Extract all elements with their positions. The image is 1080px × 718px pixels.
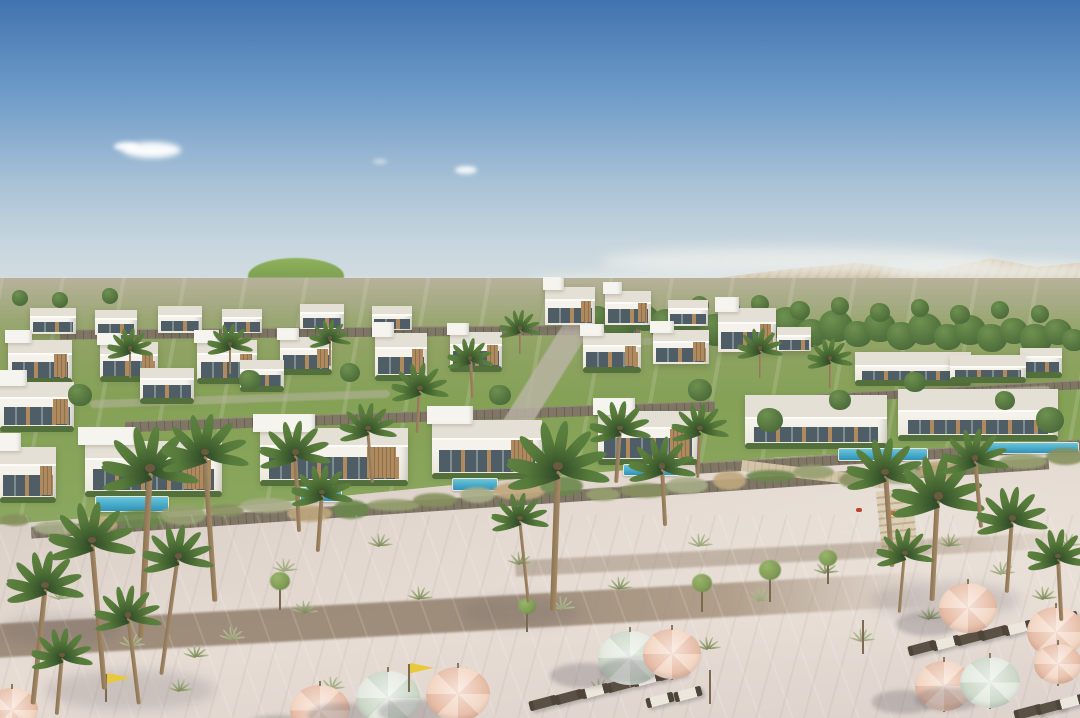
villa-roof bbox=[300, 304, 344, 314]
villa-upper-volume bbox=[543, 277, 564, 290]
hedge bbox=[583, 367, 641, 373]
villa-glazing bbox=[143, 385, 191, 398]
palm-crown bbox=[125, 612, 132, 617]
flag-pole bbox=[408, 664, 410, 692]
sapling-trunk bbox=[769, 578, 771, 602]
villa-upper-volume bbox=[427, 406, 473, 425]
villa-upper-volume bbox=[5, 330, 32, 344]
dune-shrubs bbox=[367, 499, 420, 511]
villa-glazing bbox=[1023, 362, 1060, 372]
dune-grass bbox=[305, 612, 306, 613]
dune-grass bbox=[1044, 598, 1045, 599]
tree bbox=[995, 391, 1015, 410]
palm-crown bbox=[517, 516, 523, 520]
hedge bbox=[140, 398, 194, 404]
umbrella-tip bbox=[319, 681, 321, 686]
dune-grass bbox=[760, 600, 761, 601]
beach-umbrella bbox=[426, 667, 490, 718]
palm-crown bbox=[228, 342, 233, 346]
palm-crown bbox=[145, 464, 155, 472]
palm-crown bbox=[468, 356, 473, 360]
dune-shrubs bbox=[793, 465, 834, 479]
villa-roof bbox=[950, 355, 1026, 368]
palm-crown bbox=[659, 463, 666, 468]
umbrella-tip bbox=[629, 627, 631, 632]
sapling-canopy bbox=[819, 550, 837, 566]
palm-crown bbox=[934, 492, 943, 499]
dune-grass bbox=[620, 588, 621, 589]
villa bbox=[653, 330, 709, 364]
palm-crown bbox=[1009, 515, 1016, 521]
palm-crown bbox=[902, 551, 908, 555]
tree bbox=[831, 297, 849, 314]
villa-glazing bbox=[670, 314, 705, 324]
tree bbox=[911, 299, 929, 316]
cloud bbox=[373, 159, 387, 164]
beach-umbrella bbox=[1034, 644, 1080, 685]
tree bbox=[790, 301, 810, 320]
villa bbox=[30, 308, 76, 334]
dune-shrubs bbox=[713, 471, 746, 490]
umbrella-tip bbox=[943, 657, 945, 662]
palm-crown bbox=[417, 386, 423, 390]
villa-roof bbox=[222, 309, 262, 319]
villa bbox=[0, 447, 56, 499]
villa-wood-panel bbox=[693, 342, 704, 361]
umbrella-tip bbox=[1055, 603, 1057, 608]
beach-pole bbox=[709, 670, 711, 704]
dune-grass bbox=[950, 545, 951, 546]
villa bbox=[605, 291, 651, 325]
tree bbox=[68, 384, 92, 407]
villa-roof bbox=[777, 327, 811, 337]
tree bbox=[239, 370, 261, 391]
sapling-canopy bbox=[692, 574, 712, 592]
palm-crown bbox=[758, 346, 763, 350]
villa-roof bbox=[668, 300, 708, 310]
villa-glazing bbox=[33, 322, 73, 332]
palm-crown bbox=[828, 356, 833, 360]
dune-grass bbox=[562, 608, 563, 609]
palm-crown bbox=[41, 582, 49, 588]
palm-crown bbox=[128, 346, 133, 350]
villa-roof bbox=[158, 306, 202, 317]
beach-umbrella bbox=[939, 583, 997, 632]
tree bbox=[102, 288, 118, 303]
hedge bbox=[1020, 372, 1062, 378]
dune-shrubs bbox=[240, 498, 294, 513]
villa-upper-volume bbox=[447, 323, 469, 335]
villa-roof bbox=[898, 389, 1058, 412]
palm-crown bbox=[972, 455, 979, 460]
tree bbox=[950, 305, 970, 324]
cloud bbox=[114, 142, 138, 151]
villa bbox=[0, 382, 74, 428]
beach-pole bbox=[862, 620, 864, 654]
palm-crown bbox=[328, 336, 332, 339]
sapling-trunk bbox=[526, 612, 528, 632]
umbrella-tip bbox=[989, 653, 991, 658]
umbrella-tip bbox=[11, 684, 13, 689]
villa-wood-panel bbox=[638, 303, 647, 322]
dune-grass bbox=[708, 648, 709, 649]
palm-crown bbox=[553, 462, 563, 470]
villa bbox=[668, 300, 708, 326]
umbrella-tip bbox=[457, 663, 459, 668]
tree bbox=[757, 408, 783, 433]
tree bbox=[1036, 407, 1064, 434]
villa bbox=[545, 287, 595, 325]
beach-umbrella bbox=[643, 629, 701, 678]
villa-roof bbox=[372, 306, 412, 316]
beachfront-resort-render bbox=[0, 0, 1080, 718]
tree bbox=[1062, 329, 1080, 352]
villa-roof bbox=[140, 368, 194, 380]
beach-umbrella bbox=[960, 657, 1020, 708]
dune-grass bbox=[180, 690, 181, 691]
villa bbox=[950, 355, 1026, 379]
sapling-trunk bbox=[701, 590, 703, 612]
palm-crown bbox=[881, 469, 889, 475]
tree bbox=[52, 292, 68, 307]
villa-roof bbox=[30, 308, 76, 318]
umbrella-tip bbox=[671, 625, 673, 630]
palm-crown bbox=[697, 426, 703, 430]
palm-crown bbox=[175, 553, 182, 559]
dune-grass bbox=[285, 570, 286, 571]
cloud bbox=[455, 166, 477, 174]
dune-shrubs bbox=[666, 477, 708, 494]
sapling-trunk bbox=[279, 588, 281, 610]
villa-upper-volume bbox=[0, 370, 27, 386]
villa-wood-panel bbox=[54, 354, 67, 376]
umbrella-tip bbox=[387, 667, 389, 672]
villa-wood-panel bbox=[581, 301, 591, 322]
umbrella-tip bbox=[1057, 640, 1059, 645]
tree bbox=[1031, 305, 1049, 322]
tree bbox=[991, 301, 1009, 318]
dune-shrubs bbox=[413, 493, 457, 507]
tree bbox=[489, 385, 511, 406]
villa-wood-panel bbox=[40, 466, 51, 495]
tree bbox=[340, 363, 360, 382]
hedge bbox=[0, 497, 56, 503]
palm-crown bbox=[292, 449, 299, 455]
villa bbox=[140, 368, 194, 400]
dune-grass bbox=[60, 598, 61, 599]
tree bbox=[829, 390, 851, 411]
umbrella-tip bbox=[967, 579, 969, 584]
dune-grass bbox=[196, 656, 197, 657]
villa-upper-volume bbox=[715, 297, 739, 312]
beach-toy bbox=[856, 508, 862, 512]
hedge bbox=[0, 426, 74, 432]
tree bbox=[688, 379, 712, 402]
villa-wood-panel bbox=[317, 349, 327, 368]
dune-grass bbox=[232, 638, 233, 639]
tree bbox=[904, 372, 926, 393]
palm-crown bbox=[518, 326, 522, 329]
villa-upper-volume bbox=[603, 282, 622, 294]
villa bbox=[777, 327, 811, 351]
villa-upper-volume bbox=[78, 427, 136, 445]
villa-roof bbox=[95, 310, 137, 320]
tree bbox=[12, 290, 28, 305]
hedge bbox=[280, 369, 332, 375]
villa-upper-volume bbox=[650, 321, 674, 333]
villa-upper-volume bbox=[0, 433, 21, 451]
villa-wood-panel bbox=[625, 346, 637, 366]
dune-grass bbox=[420, 598, 421, 599]
villa-glazing bbox=[779, 340, 809, 350]
hedge bbox=[950, 377, 1026, 383]
dune-grass bbox=[380, 545, 381, 546]
palm-crown bbox=[365, 426, 371, 430]
villa-wood-panel bbox=[53, 399, 68, 425]
villa-roof bbox=[1020, 348, 1062, 358]
dune-grass bbox=[700, 545, 701, 546]
villa-upper-volume bbox=[580, 324, 604, 336]
villa bbox=[1020, 348, 1062, 374]
dune-grass bbox=[520, 563, 521, 564]
sapling-canopy bbox=[270, 572, 290, 590]
sapling-trunk bbox=[827, 564, 829, 584]
villa bbox=[583, 333, 641, 369]
villa-upper-volume bbox=[277, 328, 299, 340]
villa-upper-volume bbox=[372, 322, 394, 337]
tree bbox=[870, 303, 890, 322]
dune-grass bbox=[1002, 573, 1003, 574]
